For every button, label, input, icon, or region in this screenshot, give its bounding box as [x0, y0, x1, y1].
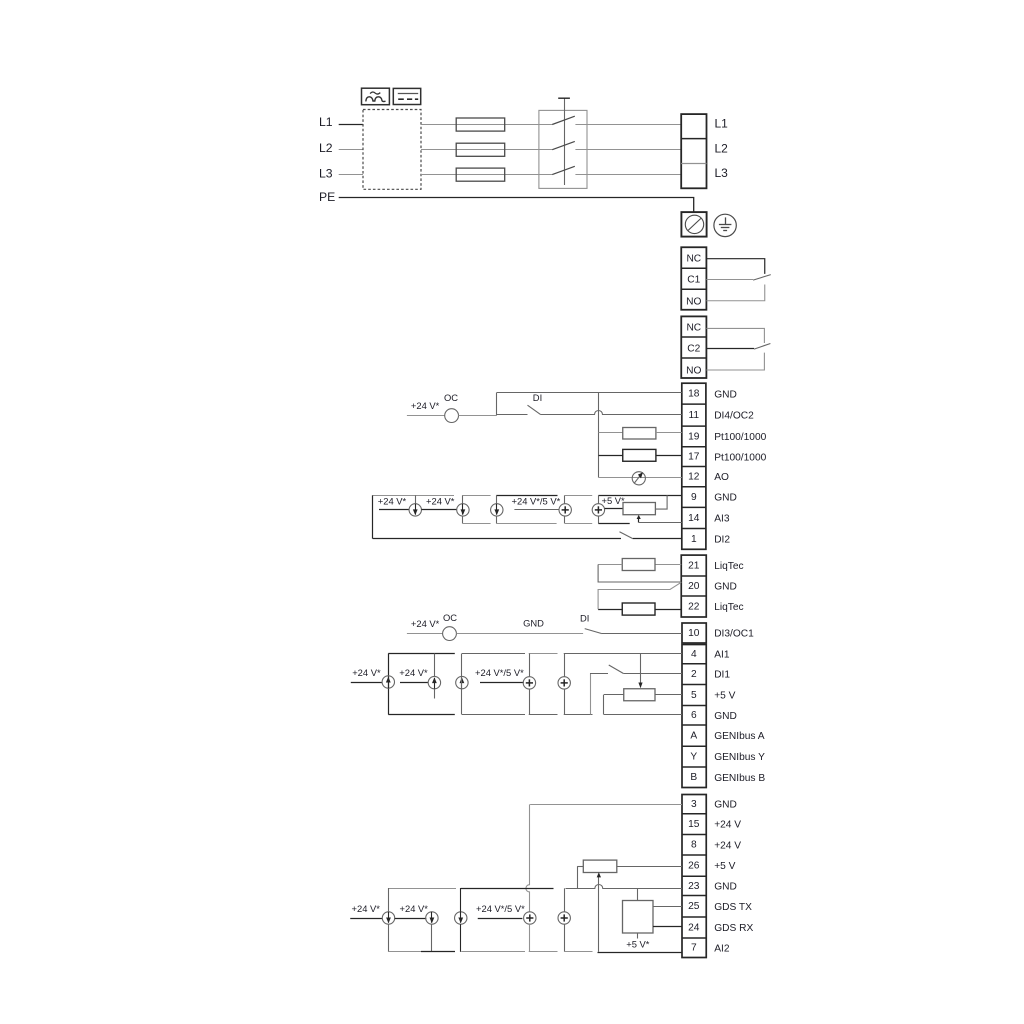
svg-text:GND: GND: [714, 800, 737, 811]
svg-text:24: 24: [688, 922, 700, 933]
svg-text:10: 10: [688, 628, 700, 639]
svg-text:26: 26: [688, 861, 700, 872]
svg-text:AO: AO: [714, 472, 729, 483]
svg-text:5: 5: [691, 690, 697, 701]
svg-text:+24 V*/5 V*: +24 V*/5 V*: [475, 667, 524, 678]
svg-text:+5 V: +5 V: [714, 691, 735, 702]
svg-text:GND: GND: [714, 493, 737, 504]
svg-text:DI: DI: [580, 613, 589, 624]
svg-text:GND: GND: [523, 618, 544, 629]
svg-text:2: 2: [691, 669, 697, 680]
svg-text:+5 V*: +5 V*: [626, 938, 650, 949]
svg-text:L2: L2: [715, 141, 729, 155]
svg-text:+24 V*: +24 V*: [378, 496, 407, 507]
svg-text:GDS TX: GDS TX: [714, 902, 752, 913]
svg-text:C1: C1: [687, 274, 700, 285]
svg-text:11: 11: [689, 410, 700, 421]
svg-text:+24 V*/5 V*: +24 V*/5 V*: [476, 903, 525, 914]
svg-text:GDS RX: GDS RX: [714, 923, 753, 934]
svg-text:+24 V*: +24 V*: [352, 903, 381, 914]
svg-text:8: 8: [691, 840, 697, 851]
svg-text:OC: OC: [443, 612, 457, 623]
svg-text:7: 7: [691, 943, 697, 954]
svg-text:L3: L3: [715, 166, 729, 180]
svg-text:AI2: AI2: [714, 943, 730, 954]
svg-text:L1: L1: [715, 117, 729, 131]
svg-text:+24 V*: +24 V*: [411, 400, 440, 411]
svg-text:Y: Y: [690, 752, 697, 763]
svg-text:LiqTec: LiqTec: [714, 561, 743, 572]
svg-text:AI1: AI1: [714, 650, 730, 661]
svg-text:A: A: [690, 731, 697, 742]
svg-text:20: 20: [688, 581, 700, 592]
svg-text:+5 V*: +5 V*: [602, 495, 626, 506]
svg-text:GENIbus Y: GENIbus Y: [714, 752, 765, 763]
svg-text:+24 V*: +24 V*: [352, 667, 381, 678]
svg-text:23: 23: [688, 881, 700, 892]
svg-text:+24 V*: +24 V*: [426, 496, 455, 507]
svg-text:Pt100/1000: Pt100/1000: [714, 432, 766, 443]
svg-text:NO: NO: [686, 296, 701, 307]
svg-text:DI3/OC1: DI3/OC1: [714, 629, 754, 640]
svg-text:L1: L1: [319, 115, 333, 129]
svg-text:1: 1: [691, 534, 697, 545]
svg-text:19: 19: [688, 431, 700, 442]
svg-text:9: 9: [691, 492, 697, 503]
svg-text:21: 21: [688, 560, 700, 571]
svg-text:+5 V: +5 V: [714, 861, 735, 872]
svg-text:15: 15: [688, 819, 700, 830]
svg-text:NC: NC: [686, 322, 701, 333]
svg-text:14: 14: [688, 513, 700, 524]
svg-text:18: 18: [688, 389, 700, 400]
svg-text:B: B: [690, 772, 697, 783]
svg-text:LiqTec: LiqTec: [714, 602, 743, 613]
svg-text:PE: PE: [319, 190, 335, 204]
svg-text:4: 4: [691, 649, 697, 660]
svg-text:+24 V*: +24 V*: [400, 903, 429, 914]
svg-text:GND: GND: [714, 711, 737, 722]
svg-text:NO: NO: [686, 365, 701, 376]
svg-text:3: 3: [691, 799, 697, 810]
svg-text:AI3: AI3: [714, 514, 730, 525]
svg-text:Pt100/1000: Pt100/1000: [714, 452, 766, 463]
svg-text:+24 V*: +24 V*: [411, 618, 440, 629]
svg-text:GENIbus A: GENIbus A: [714, 731, 765, 742]
svg-text:NC: NC: [686, 253, 701, 264]
svg-text:+24 V: +24 V: [714, 820, 741, 831]
svg-text:+24 V: +24 V: [714, 840, 741, 851]
svg-text:GND: GND: [714, 389, 737, 400]
svg-text:L3: L3: [319, 167, 333, 181]
svg-text:+24 V*: +24 V*: [399, 667, 428, 678]
svg-text:DI1: DI1: [714, 670, 730, 681]
svg-text:25: 25: [688, 901, 700, 912]
svg-text:DI2: DI2: [714, 535, 730, 546]
svg-text:DI: DI: [533, 392, 542, 403]
svg-text:C2: C2: [687, 343, 700, 354]
svg-text:OC: OC: [444, 392, 458, 403]
svg-text:DI4/OC2: DI4/OC2: [714, 411, 754, 422]
svg-text:L2: L2: [319, 141, 333, 155]
svg-text:GND: GND: [714, 582, 737, 593]
svg-text:GND: GND: [714, 881, 737, 892]
svg-text:+24 V*/5 V*: +24 V*/5 V*: [512, 496, 561, 507]
svg-text:6: 6: [691, 710, 697, 721]
svg-text:12: 12: [688, 472, 700, 483]
svg-text:GENIbus B: GENIbus B: [714, 773, 765, 784]
svg-text:22: 22: [688, 601, 700, 612]
svg-text:17: 17: [688, 452, 700, 463]
